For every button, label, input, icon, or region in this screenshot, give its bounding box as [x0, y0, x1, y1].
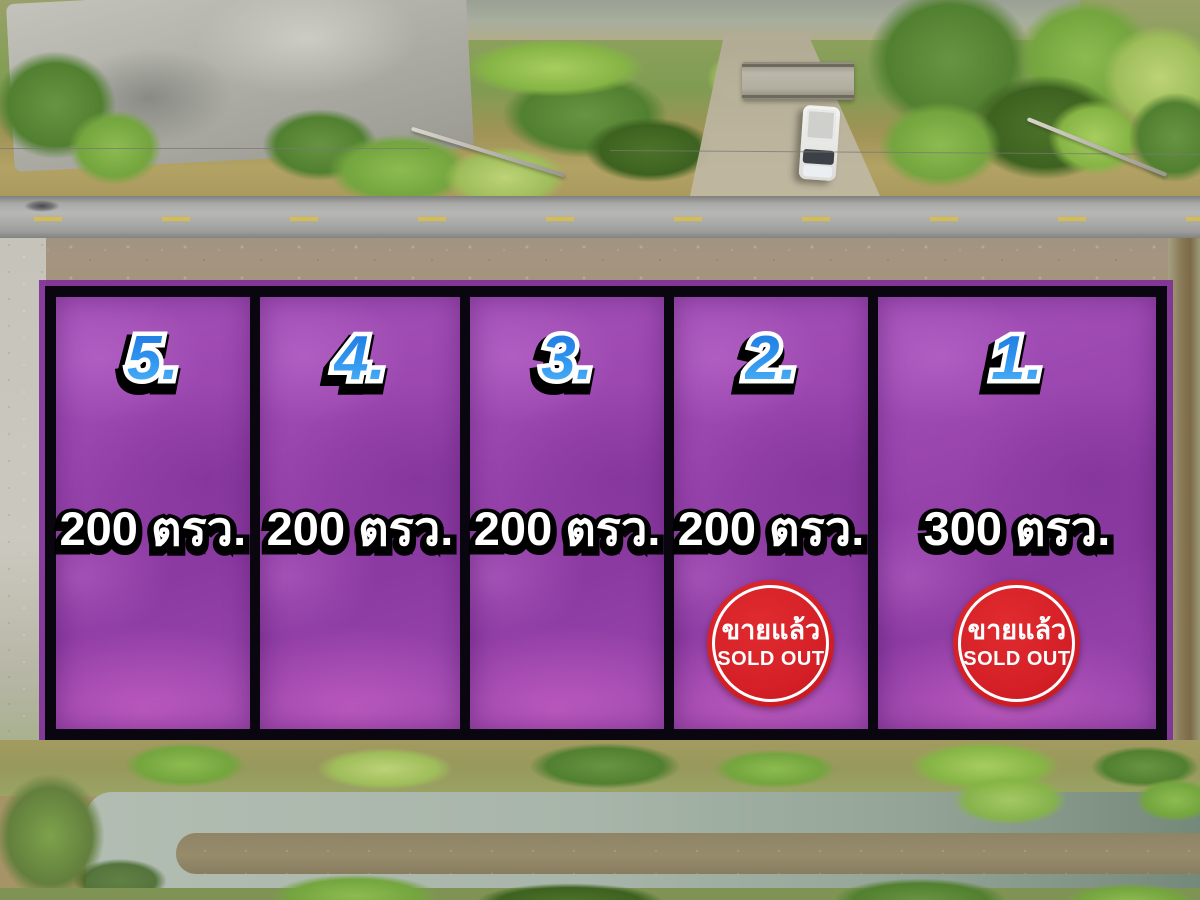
plot-4: 4. 4. 4. 200 ตรว. 200 ตรว. — [260, 297, 460, 729]
plot-size-label: 200 ตรว. 200 ตรว. — [678, 503, 865, 556]
power-line — [0, 148, 430, 149]
sold-out-badge: ขายแล้ว SOLD OUT — [953, 580, 1080, 707]
sold-badge-thai-text: ขายแล้ว — [968, 616, 1067, 644]
culvert-bridge — [742, 62, 854, 100]
tree-canopy — [855, 85, 1025, 205]
palm-plants — [930, 765, 1090, 835]
sold-out-badge: ขายแล้ว SOLD OUT — [707, 580, 834, 707]
land-plots-grid: 5. 5. 5. 200 ตรว. 200 ตรว. 4. 4. 4. 200 … — [45, 286, 1167, 740]
right-dirt-strip — [1168, 238, 1200, 768]
bush — [690, 742, 860, 796]
plot-number: 4. 4. 4. — [334, 324, 386, 393]
left-gravel-path — [0, 238, 46, 786]
road-debris — [24, 200, 60, 212]
plot-2: 2. 2. 2. 200 ตรว. 200 ตรว. ขายแล้ว SOLD … — [674, 297, 868, 729]
plot-number: 2. 2. 2. — [745, 324, 797, 393]
plot-number: 1. 1. 1. — [991, 324, 1043, 393]
bush — [500, 734, 710, 798]
plot-size-label: 300 ตรว. 300 ตรว. — [924, 503, 1111, 556]
culvert-railing — [742, 64, 854, 67]
sold-badge-english-text: SOLD OUT — [963, 648, 1070, 671]
plot-size-label: 200 ตรว. 200 ตรว. — [60, 503, 247, 556]
plot-size-label: 200 ตรว. 200 ตรว. — [267, 503, 454, 556]
plot-size-label: 200 ตรว. 200 ตรว. — [474, 503, 661, 556]
plot-5: 5. 5. 5. 200 ตรว. 200 ตรว. — [56, 297, 250, 729]
bush — [290, 740, 480, 798]
asphalt-road — [0, 196, 1200, 238]
culvert-railing — [742, 95, 854, 98]
plot-1: 1. 1. 1. 300 ตรว. 300 ตรว. ขายแล้ว SOLD … — [878, 297, 1156, 729]
truck-hood — [803, 165, 833, 178]
bush — [100, 734, 270, 796]
road-center-line — [0, 217, 1200, 221]
grass-patch — [430, 28, 680, 108]
plot-number: 3. 3. 3. — [541, 324, 593, 393]
white-pickup-truck — [798, 105, 840, 181]
sold-badge-thai-text: ขายแล้ว — [722, 616, 821, 644]
sold-badge-english-text: SOLD OUT — [717, 648, 824, 671]
plot-number: 5. 5. 5. — [127, 324, 179, 393]
aerial-land-plot-photo: 5. 5. 5. 200 ตรว. 200 ตรว. 4. 4. 4. 200 … — [0, 0, 1200, 900]
top-vegetation-band — [0, 0, 1200, 196]
plot-3: 3. 3. 3. 200 ตรว. 200 ตรว. — [470, 297, 664, 729]
truck-bed — [805, 109, 836, 141]
